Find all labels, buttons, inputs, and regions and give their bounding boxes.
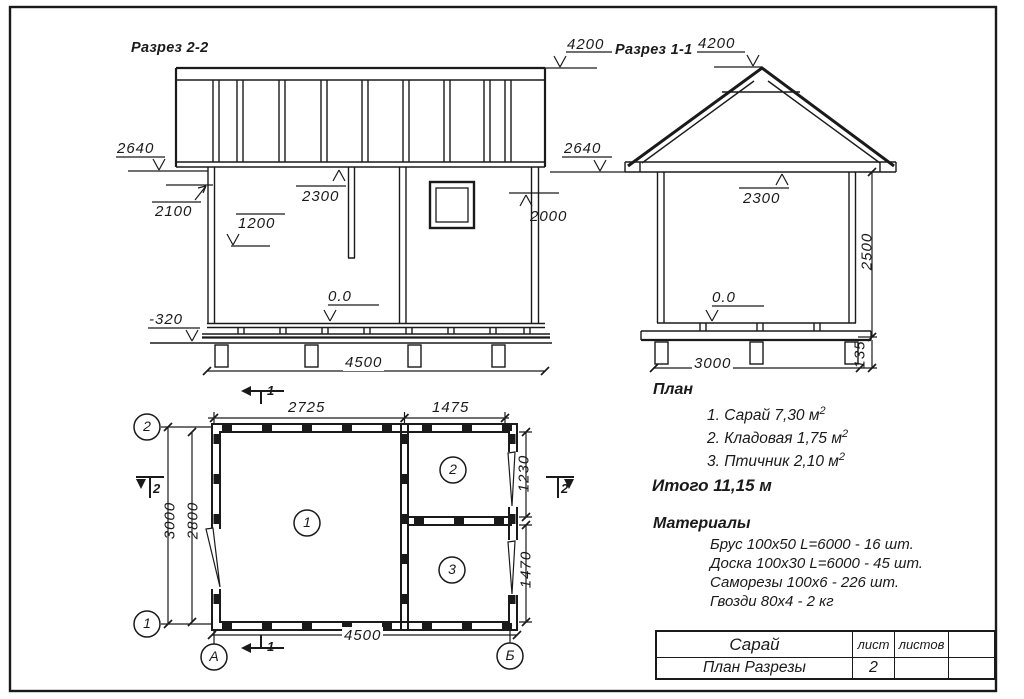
title-block-empty-top — [948, 632, 994, 657]
notes-item-1-text: 1. Сарай 7,30 м — [707, 407, 820, 424]
title-block-doc: План Разрезы — [657, 657, 852, 678]
section-2-2-title: Разрез 2-2 — [131, 40, 208, 56]
section-mark-1-bottom: 1 — [267, 639, 274, 654]
title-block: Сарай лист листов План Разрезы 2 — [655, 630, 996, 680]
material-item-3: Саморезы 100х6 - 226 шт. — [710, 574, 899, 591]
notes-item-3-sup: 2 — [839, 451, 845, 463]
dim-label-s11-135: 135 — [852, 333, 869, 377]
notes-item-1: 1. Сарай 7,30 м2 — [707, 405, 826, 425]
title-block-empty-right — [948, 657, 994, 678]
axis-label-1: 1 — [134, 615, 160, 631]
drawing-canvas — [0, 0, 1024, 699]
dim-label-s22-2000: 2000 — [530, 208, 567, 225]
dim-label-s22-1200: 1200 — [238, 215, 275, 232]
title-block-empty-mid — [894, 657, 948, 678]
notes-item-2-sup: 2 — [842, 428, 848, 440]
materials-title: Материалы — [653, 515, 751, 533]
room-number-2: 2 — [440, 461, 466, 477]
level-label-s22-floor: 0.0 — [328, 288, 352, 305]
axis-label-a: А — [201, 648, 227, 664]
section-1-1-title: Разрез 1-1 — [615, 42, 692, 58]
drawing-sheet: Разрез 2-2 4200 2640 2100 1200 2300 2000… — [0, 0, 1024, 699]
material-item-2: Доска 100х30 L=6000 - 45 шт. — [710, 555, 923, 572]
section-1-1-drawing — [550, 52, 896, 372]
dim-label-plan-1475: 1475 — [432, 399, 469, 416]
section-mark-2-right: 2 — [561, 481, 568, 496]
notes-item-2: 2. Кладовая 1,75 м2 — [707, 428, 848, 448]
title-block-sheets-label: листов — [894, 632, 948, 657]
room-number-1: 1 — [294, 514, 320, 530]
dim-label-s11-3000: 3000 — [692, 355, 733, 372]
dim-label-s11-2640: 2640 — [564, 140, 601, 157]
dim-label-plan-1230: 1230 — [516, 452, 533, 496]
notes-item-2-text: 2. Кладовая 1,75 м — [707, 430, 842, 447]
dim-label-s11-4200: 4200 — [698, 35, 735, 52]
room-number-3: 3 — [439, 561, 465, 577]
section-mark-2-left: 2 — [153, 481, 160, 496]
dim-label-s22-4500: 4500 — [343, 354, 384, 371]
foundation-posts-1-1 — [655, 342, 858, 364]
notes-item-1-sup: 2 — [820, 405, 826, 417]
material-item-1: Брус 100х50 L=6000 - 16 шт. — [710, 536, 914, 553]
notes-item-3: 3. Птичник 2,10 м2 — [707, 451, 845, 471]
dim-label-plan-2800: 2800 — [185, 499, 202, 543]
plan-doors — [206, 452, 518, 595]
dim-label-s11-2300: 2300 — [743, 190, 780, 207]
dim-label-plan-1470: 1470 — [518, 548, 535, 592]
axis-label-2: 2 — [134, 418, 160, 434]
section-mark-1-top: 1 — [267, 383, 274, 398]
dim-label-plan-3000: 3000 — [162, 499, 179, 543]
material-item-4: Гвозди 80х4 - 2 кг — [710, 593, 834, 610]
dim-label-s22-2300: 2300 — [302, 188, 339, 205]
title-block-sheet-number: 2 — [852, 657, 894, 678]
notes-item-3-text: 3. Птичник 2,10 м — [707, 453, 839, 470]
dim-label-s22-2100: 2100 — [155, 203, 192, 220]
title-block-sheet-label: лист — [852, 632, 894, 657]
dim-label-s22-2640: 2640 — [117, 140, 154, 157]
dim-label-s11-2500: 2500 — [859, 230, 876, 274]
axis-label-b: Б — [497, 647, 523, 663]
dim-label-s22-4200: 4200 — [567, 36, 604, 53]
title-block-name: Сарай — [657, 632, 852, 657]
dim-label-plan-4500: 4500 — [342, 627, 383, 644]
notes-plan-title: План — [653, 381, 693, 399]
dim-label-plan-2725: 2725 — [288, 399, 325, 416]
notes-total: Итого 11,15 м — [652, 476, 772, 496]
level-label-s22-ground: -320 — [149, 311, 183, 328]
level-label-s11-floor: 0.0 — [712, 289, 736, 306]
